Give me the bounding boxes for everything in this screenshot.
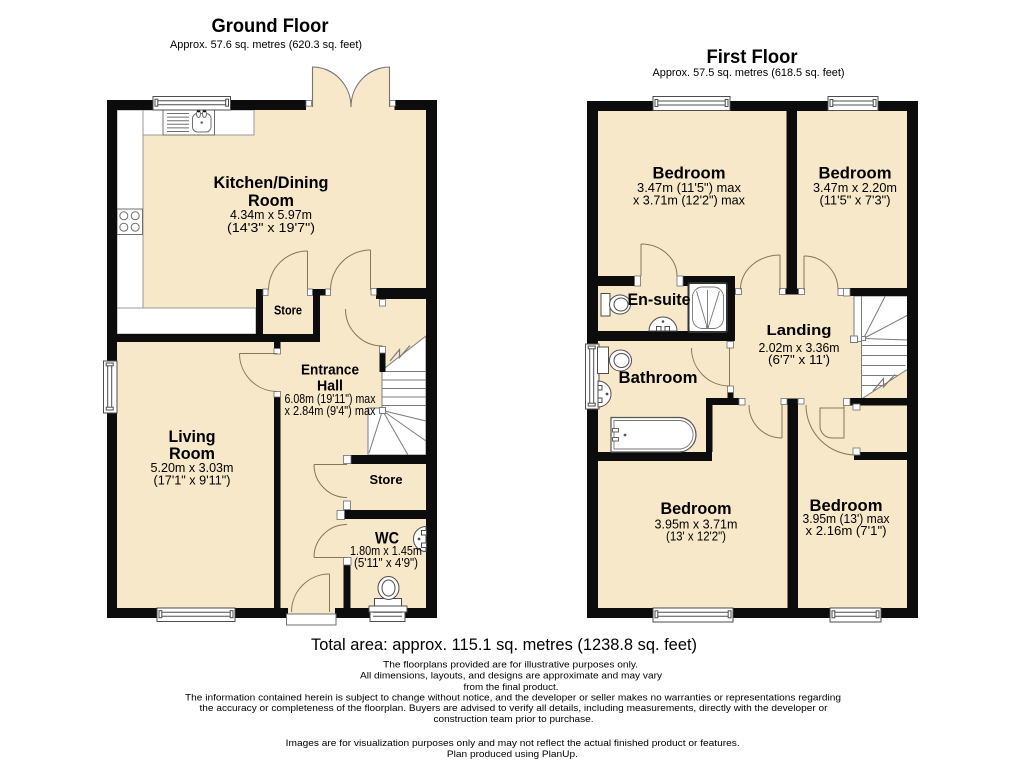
svg-text:Store: Store xyxy=(370,472,403,487)
svg-text:The information contained here: The information contained herein is subj… xyxy=(185,692,841,703)
svg-text:Plan produced using PlanUp.: Plan produced using PlanUp. xyxy=(447,749,578,760)
svg-text:En-suite: En-suite xyxy=(628,290,691,309)
svg-text:(5'11" x 4'9"): (5'11" x 4'9") xyxy=(354,555,418,570)
svg-text:Bathroom: Bathroom xyxy=(619,368,698,387)
svg-text:Ground Floor: Ground Floor xyxy=(212,16,330,37)
svg-text:Store: Store xyxy=(274,303,302,318)
svg-text:(14'3" x 19'7"): (14'3" x 19'7") xyxy=(227,220,315,235)
svg-text:(11'5" x 7'3"): (11'5" x 7'3") xyxy=(820,193,891,208)
svg-text:Landing: Landing xyxy=(767,322,832,339)
svg-text:Images are for visualization p: Images are for visualization purposes on… xyxy=(286,738,740,749)
svg-text:(17'1" x 9'11"): (17'1" x 9'11") xyxy=(154,473,231,488)
svg-text:x 2.16m (7'1"): x 2.16m (7'1") xyxy=(806,523,887,538)
svg-text:The floorplans provided are fo: The floorplans provided are for illustra… xyxy=(383,660,638,671)
svg-text:Approx. 57.6 sq. metres (620.3: Approx. 57.6 sq. metres (620.3 sq. feet) xyxy=(170,39,362,51)
svg-text:Kitchen/Dining: Kitchen/Dining xyxy=(214,173,329,192)
svg-text:(13' x 12'2"): (13' x 12'2") xyxy=(666,529,726,544)
svg-text:construction team prior to pur: construction team prior to purchase. xyxy=(434,714,594,725)
svg-text:Total area: approx. 115.1 sq.: Total area: approx. 115.1 sq. metres (12… xyxy=(311,636,697,654)
svg-text:(6'7" x 11'): (6'7" x 11') xyxy=(768,352,830,367)
svg-text:Bedroom: Bedroom xyxy=(661,499,732,518)
svg-text:x 3.71m (12'2") max: x 3.71m (12'2") max xyxy=(633,193,745,208)
svg-text:First Floor: First Floor xyxy=(707,47,799,68)
svg-text:the accuracy or completeness o: the accuracy or completeness of the floo… xyxy=(200,703,829,714)
svg-text:Approx. 57.5 sq. metres (618.5: Approx. 57.5 sq. metres (618.5 sq. feet) xyxy=(653,67,845,79)
svg-text:All dimensions, layouts, and d: All dimensions, layouts, and designs are… xyxy=(360,671,662,682)
svg-text:x 2.84m (9'4") max: x 2.84m (9'4") max xyxy=(285,403,376,418)
svg-text:Entrance: Entrance xyxy=(301,362,359,379)
svg-text:from the final product.: from the final product. xyxy=(464,682,559,693)
